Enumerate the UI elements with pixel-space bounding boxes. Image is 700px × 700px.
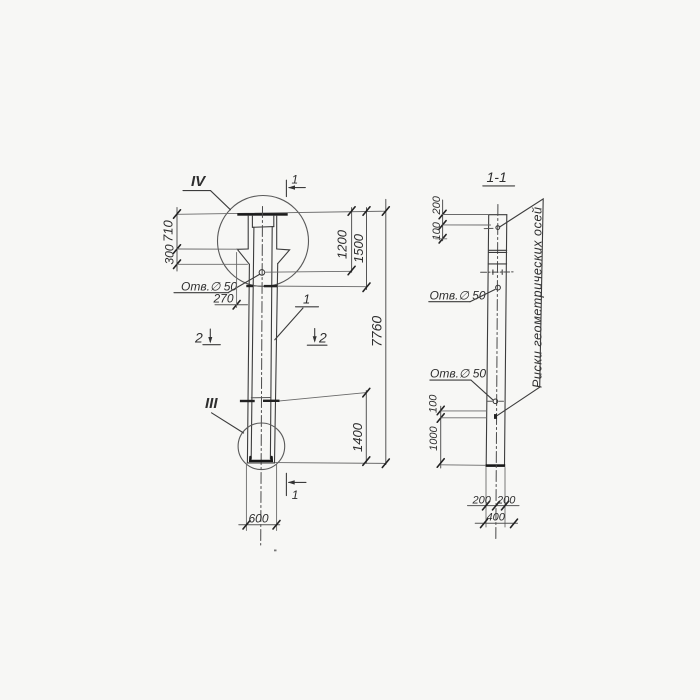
svg-text:Отв.∅ 50: Отв.∅ 50	[430, 289, 486, 303]
svg-text:200: 200	[472, 495, 492, 507]
svg-text:270: 270	[213, 292, 234, 306]
svg-text:400: 400	[487, 512, 506, 524]
svg-text:2: 2	[318, 330, 327, 346]
svg-text:1-1: 1-1	[487, 169, 507, 185]
svg-text:1: 1	[292, 173, 299, 187]
svg-text:710: 710	[161, 220, 176, 242]
svg-text:600: 600	[249, 512, 269, 526]
svg-text:III: III	[205, 395, 218, 412]
svg-text:1500: 1500	[351, 233, 366, 263]
svg-text:200: 200	[496, 495, 516, 507]
svg-text:IV: IV	[191, 173, 207, 190]
svg-text:100: 100	[428, 394, 440, 413]
svg-text:1200: 1200	[335, 229, 350, 259]
svg-text:300: 300	[163, 244, 177, 264]
svg-text:1: 1	[303, 292, 310, 307]
svg-text:100: 100	[431, 221, 443, 240]
svg-text:200: 200	[431, 195, 443, 215]
svg-text:Отв.∅ 50: Отв.∅ 50	[430, 367, 486, 381]
svg-text:1000: 1000	[428, 426, 440, 451]
svg-text:2: 2	[194, 330, 203, 346]
svg-text:7760: 7760	[369, 316, 385, 347]
svg-text:1400: 1400	[350, 422, 365, 452]
svg-text:1: 1	[292, 488, 299, 502]
